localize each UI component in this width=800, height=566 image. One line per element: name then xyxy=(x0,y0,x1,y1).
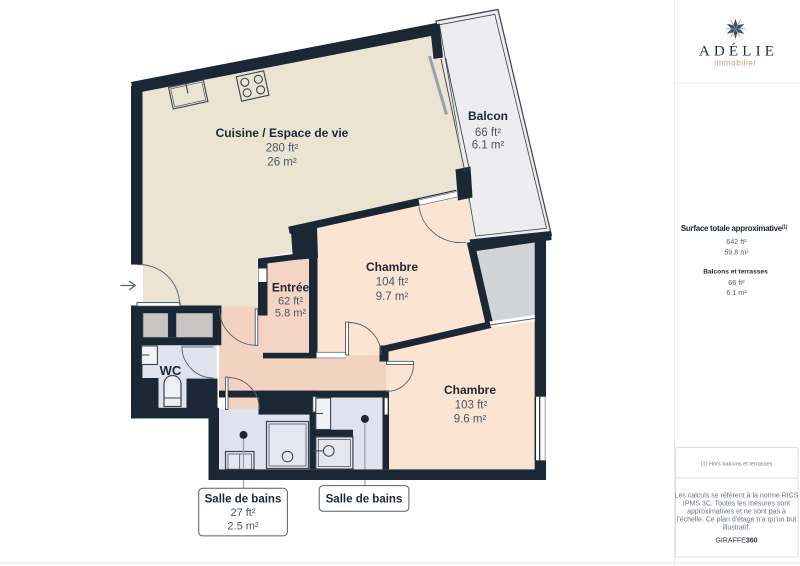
svg-text:62 ft²: 62 ft² xyxy=(278,296,303,308)
svg-text:6.1 m²: 6.1 m² xyxy=(472,140,505,152)
svg-text:Chambre: Chambre xyxy=(366,260,418,274)
svg-text:9.6 m²: 9.6 m² xyxy=(454,414,487,426)
svg-text:27 ft²: 27 ft² xyxy=(230,507,255,519)
svg-text:ADÉLIE: ADÉLIE xyxy=(699,43,778,60)
svg-text:l'échelle. Ce plan d'étage n'a: l'échelle. Ce plan d'étage n'a qu'un but xyxy=(677,517,796,524)
svg-text:(1) Hors balcons et terrasses: (1) Hors balcons et terrasses xyxy=(701,462,773,468)
svg-text:Chambre: Chambre xyxy=(444,383,496,397)
svg-text:280 ft²: 280 ft² xyxy=(266,143,299,155)
svg-text:IPMS 3C. Toutes les mesures so: IPMS 3C. Toutes les mesures sont xyxy=(683,501,790,508)
svg-text:Salle de bains: Salle de bains xyxy=(326,494,403,506)
svg-text:6.1 m²: 6.1 m² xyxy=(726,288,747,297)
svg-text:Cuisine / Espace de vie: Cuisine / Espace de vie xyxy=(216,126,349,140)
svg-text:103 ft²: 103 ft² xyxy=(455,400,488,412)
svg-text:Balcon: Balcon xyxy=(468,109,508,123)
svg-text:immobilier: immobilier xyxy=(714,59,756,68)
svg-text:WC: WC xyxy=(160,363,182,378)
svg-text:Les calculs se réfèrent à la n: Les calculs se réfèrent à la norme RICS xyxy=(675,493,799,500)
svg-text:5.8 m²: 5.8 m² xyxy=(275,308,307,320)
svg-text:Surface totale approximative(1: Surface totale approximative(1) xyxy=(681,224,788,233)
svg-text:Balcons et terrasses: Balcons et terrasses xyxy=(703,269,768,276)
svg-text:illustratif.: illustratif. xyxy=(723,525,751,532)
svg-text:Salle de bains: Salle de bains xyxy=(205,494,282,506)
svg-text:66 ft²: 66 ft² xyxy=(475,127,501,139)
svg-text:2.5 m²: 2.5 m² xyxy=(227,521,259,533)
svg-text:26 m²: 26 m² xyxy=(267,157,297,169)
svg-text:Entrée: Entrée xyxy=(272,281,310,295)
svg-text:642 ft²: 642 ft² xyxy=(726,237,747,246)
svg-text:GIRAFFE360: GIRAFFE360 xyxy=(715,538,757,545)
svg-text:66 ft²: 66 ft² xyxy=(728,278,745,287)
svg-text:59.8 m²: 59.8 m² xyxy=(724,248,749,257)
svg-text:9.7 m²: 9.7 m² xyxy=(376,291,409,303)
svg-text:104 ft²: 104 ft² xyxy=(376,277,409,289)
svg-text:approximatives et ne sont pas: approximatives et ne sont pas à xyxy=(687,509,786,516)
